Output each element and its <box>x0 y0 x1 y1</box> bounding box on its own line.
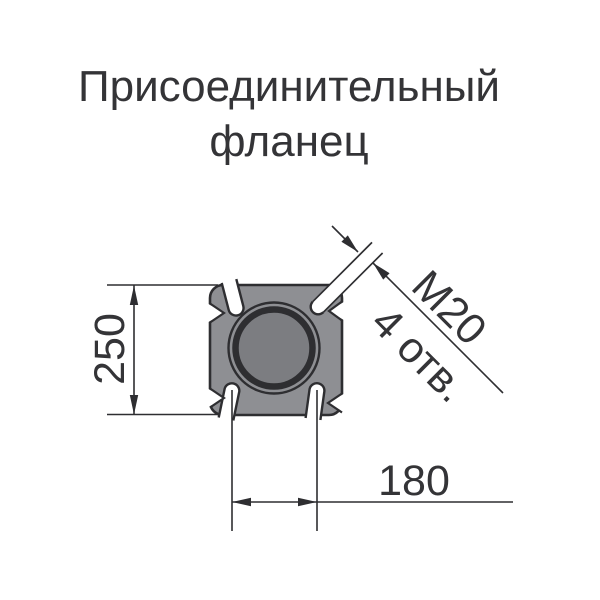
title-line-1: Присоединительный <box>78 62 500 111</box>
thread-callout: М20 4 отв. <box>332 226 503 412</box>
dim-spacing-label: 180 <box>378 457 450 505</box>
screenshot-root: Присоединительный фланец <box>0 0 600 600</box>
diagram-title: Присоединительный фланец <box>78 62 500 166</box>
dim-height-label: 250 <box>86 313 134 385</box>
arrowhead-left <box>232 498 251 506</box>
arrowhead-up <box>130 286 138 306</box>
arrowhead-right <box>298 498 317 506</box>
dimension-height-250: 250 <box>86 285 218 415</box>
bore-ring <box>236 310 313 387</box>
title-line-2: фланец <box>209 117 368 166</box>
flange-drawing: Присоединительный фланец <box>0 0 600 600</box>
arrowhead-down <box>130 395 138 415</box>
